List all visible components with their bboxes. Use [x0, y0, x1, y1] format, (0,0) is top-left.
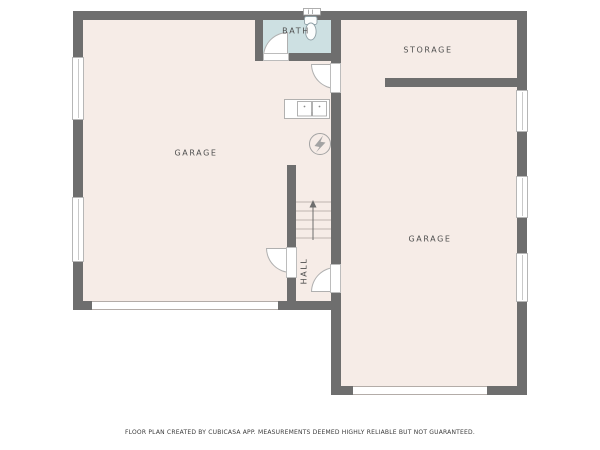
footer-disclaimer: FLOOR PLAN CREATED BY CUBICASA APP. MEAS… [0, 429, 600, 436]
window-right-2 [516, 176, 528, 218]
door-leaf-hall-right [330, 264, 341, 293]
room-label-bath: BATH [282, 27, 310, 36]
garage-door-right [353, 386, 487, 395]
floor-plan-canvas: GARAGE GARAGE STORAGE BATH HALL FLOOR PL… [0, 0, 600, 450]
room-label-hall: HALL [300, 258, 309, 285]
door-leaf-hall-to-garage [286, 247, 297, 278]
right-section-floor [341, 19, 517, 386]
room-label-garage-left: GARAGE [174, 149, 217, 158]
garage-door-left [92, 301, 278, 310]
room-label-garage-right: GARAGE [408, 235, 451, 244]
window-left-2 [72, 197, 84, 262]
window-left-1 [72, 57, 84, 120]
window-right-1 [516, 90, 528, 132]
wall-top [73, 11, 527, 20]
door-leaf-bath [263, 53, 289, 61]
window-right-3 [516, 253, 528, 302]
wall-storage-divider [385, 78, 517, 87]
door-leaf-garage-connector [330, 63, 341, 93]
room-label-storage: STORAGE [403, 46, 452, 55]
wall-left [73, 11, 83, 310]
wall-hall-left [287, 165, 296, 310]
